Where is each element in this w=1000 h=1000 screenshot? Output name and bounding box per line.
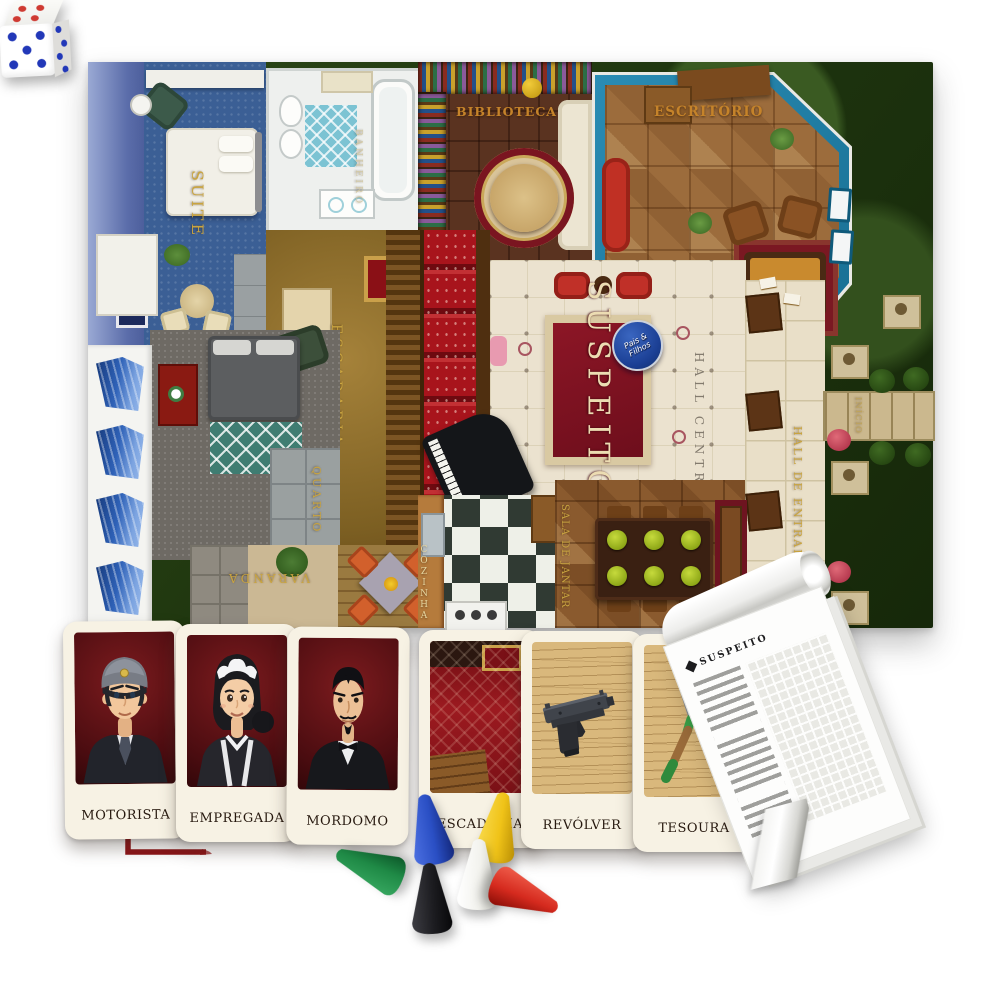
desk-papers: [783, 293, 800, 305]
room-label-biblioteca: BIBLIOTECA: [456, 104, 557, 119]
garden-pillar: [831, 461, 869, 495]
bathtub: [371, 79, 415, 201]
room-quarto[interactable]: QUARTO: [150, 330, 340, 560]
bedroom-floor-tiles: [270, 448, 340, 560]
card-label: EMPREGADA: [178, 811, 296, 826]
yellow-pouf: [522, 78, 542, 98]
stair-railing: [386, 230, 420, 555]
library-round-table: [490, 164, 558, 232]
garden-pillar: [831, 591, 869, 625]
bedroom-nightstand: [158, 364, 198, 426]
pistol-icon: [532, 642, 632, 794]
blue-awning: [96, 357, 144, 411]
veranda-flower: [384, 577, 398, 591]
bidet: [279, 129, 303, 159]
room-varanda[interactable]: VARANDA: [190, 545, 442, 628]
office-plant: [770, 128, 794, 150]
product-photo: SUITE BANHEIRO BIBLIOTECA: [0, 0, 1000, 1000]
floor-ring: [676, 326, 690, 340]
garden-pillar: [883, 295, 921, 329]
driver-portrait-icon: [74, 631, 176, 784]
blue-awning: [96, 425, 144, 479]
card-label: REVÓLVER: [523, 818, 641, 833]
suite-wardrobe: [96, 234, 158, 316]
suite-lamp: [132, 96, 150, 114]
room-suite[interactable]: SUITE: [88, 62, 266, 345]
red-flowers: [827, 429, 851, 451]
brand-badge-label: Pais & Filhos: [618, 330, 656, 361]
room-label-cozinha: COZINHA: [419, 545, 429, 622]
room-label-suite: SUITE: [188, 170, 207, 238]
hedge: [869, 441, 895, 465]
room-label-banheiro: BANHEIRO: [353, 129, 363, 206]
game-board[interactable]: SUITE BANHEIRO BIBLIOTECA: [88, 62, 933, 628]
start-space-label: INÍCIO: [853, 397, 863, 434]
diamond-logo-icon: [685, 660, 697, 672]
hedge: [869, 369, 895, 393]
board-title: SUSPEITO: [581, 280, 616, 501]
suite-bed: [166, 128, 258, 216]
room-label-varanda: VARANDA: [226, 571, 310, 585]
pawn-red[interactable]: [478, 856, 570, 933]
room-label-hall-de-entrada: HALL DE ENTRADA: [791, 426, 804, 570]
die-side-face: [52, 19, 72, 77]
bath-vanity: [319, 189, 375, 219]
brand-badge: Pais & Filhos: [612, 320, 663, 371]
suite-plant: [164, 244, 190, 266]
butler-portrait-icon: [298, 638, 399, 791]
blue-awning: [96, 561, 144, 615]
office-red-sofa: [602, 158, 630, 252]
bedroom-bed: [208, 336, 300, 420]
bookshelf-top: [418, 62, 592, 94]
garden: INÍCIO: [825, 275, 933, 628]
room-cozinha[interactable]: COZINHA: [418, 495, 565, 628]
card-mordomo[interactable]: MORDOMO: [286, 627, 410, 846]
house-facade: [88, 345, 152, 628]
card-motorista[interactable]: MOTORISTA: [63, 620, 187, 839]
card-empregada[interactable]: EMPREGADA: [176, 624, 298, 842]
hall-red-sofa: [616, 272, 652, 299]
card-label: MORDOMO: [288, 814, 406, 830]
bay-window: [829, 229, 854, 265]
dining-chair: [607, 598, 631, 612]
die[interactable]: [0, 0, 80, 84]
floor-ring: [518, 342, 532, 356]
toilet: [279, 95, 303, 127]
staircase-photo-icon: [430, 641, 530, 793]
floor-ring: [672, 430, 686, 444]
room-label-escritorio: ESCRITÓRIO: [654, 104, 763, 120]
kitchen-stove: [445, 601, 507, 632]
room-label-sala-de-jantar: SALA DE JANTAR: [559, 504, 570, 608]
entry-bench: [745, 490, 783, 531]
card-revolver[interactable]: REVÓLVER: [521, 631, 643, 849]
room-label-quarto: QUARTO: [310, 466, 323, 534]
entry-bench: [745, 390, 783, 431]
card-label: MOTORISTA: [67, 807, 185, 823]
garden-pillar: [831, 345, 869, 379]
office-plant: [688, 212, 712, 234]
bath-cabinet: [321, 71, 373, 93]
pawn-black[interactable]: [403, 859, 459, 940]
blue-awning: [96, 493, 144, 547]
hedge: [903, 367, 929, 391]
bath-rug: [305, 105, 357, 167]
maid-portrait-icon: [187, 635, 287, 787]
die-front-face: [0, 23, 56, 78]
pink-chair: [490, 336, 507, 366]
dining-chair: [643, 598, 667, 612]
dining-table: [595, 518, 713, 600]
entry-bench: [745, 292, 783, 333]
hedge: [905, 443, 931, 467]
bay-window: [827, 187, 852, 223]
